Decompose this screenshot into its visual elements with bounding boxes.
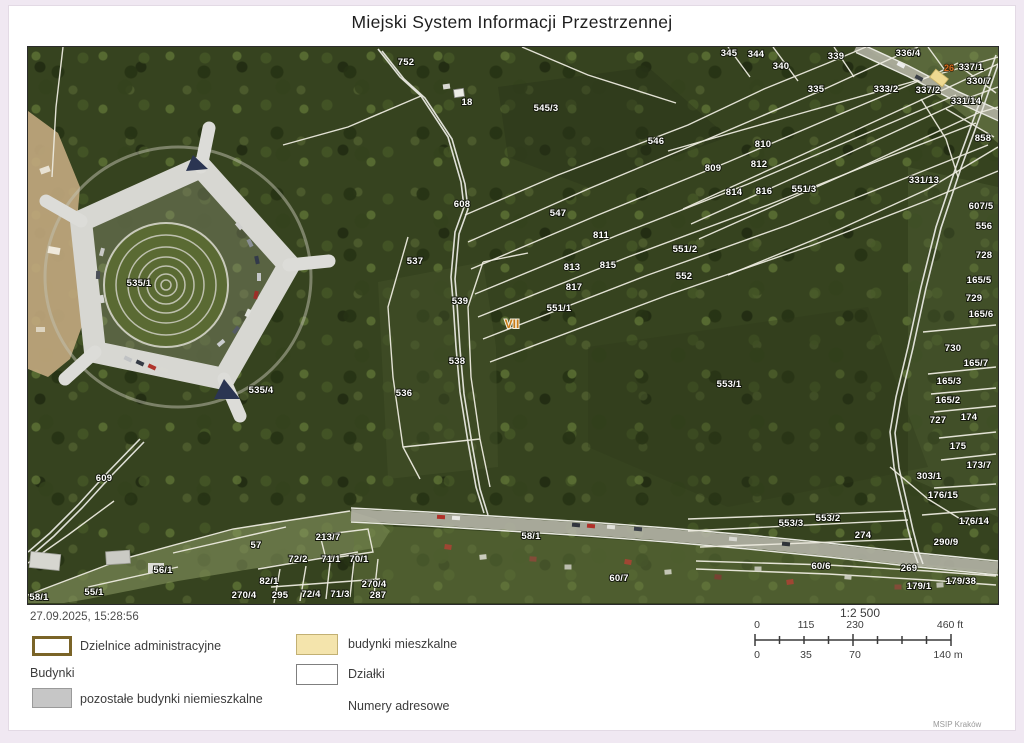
- terrain-patch: [378, 262, 498, 479]
- parcel-label: 303/1: [917, 471, 942, 482]
- parcel-label: 609: [96, 473, 112, 484]
- parcel-label: 546: [648, 136, 664, 147]
- parcel-label: 344: [748, 49, 765, 60]
- parcel-label: 816: [756, 186, 772, 197]
- parcel-label: 290/9: [934, 537, 959, 548]
- car: [572, 523, 580, 528]
- parcel-label: 71/3: [330, 589, 349, 600]
- parcel-label: 535/1: [127, 278, 152, 289]
- garden-shed: [755, 567, 762, 572]
- parcel-label: 814: [726, 187, 743, 198]
- parcel-label: 165/5: [967, 275, 992, 286]
- parcel-label: 173/7: [967, 460, 992, 471]
- parcel-label: 538: [449, 356, 465, 367]
- legend-parcels-label: Działki: [348, 667, 385, 681]
- building: [443, 84, 451, 90]
- scale-ft-115: 115: [798, 619, 815, 631]
- parcel-label: 287: [370, 590, 386, 601]
- parcel-label: 536: [396, 388, 412, 399]
- scale-bar: [749, 632, 965, 648]
- garden-shed: [844, 574, 851, 580]
- building: [36, 327, 45, 332]
- parcel-label: 809: [705, 163, 721, 174]
- parcel-label: 60/6: [811, 561, 830, 572]
- parcel-label: 165/2: [936, 395, 961, 406]
- parcel-label: 858: [975, 133, 991, 144]
- parcel-label: 551/3: [792, 184, 817, 195]
- parcel-label: 752: [398, 57, 414, 68]
- scale-ft-460: 460 ft: [937, 619, 963, 631]
- parcel-label: 274: [855, 530, 872, 541]
- parcel-label: 179/1: [907, 581, 932, 592]
- parcel-label: 175: [950, 441, 967, 452]
- parcel-label: 174: [961, 412, 978, 423]
- car: [437, 515, 445, 520]
- road-line: [32, 442, 144, 555]
- parcel-label: 295: [272, 590, 289, 601]
- parcel-label: 728: [976, 250, 992, 261]
- parcel-label: 337/2: [916, 85, 941, 96]
- parcel-label: 165/6: [969, 309, 994, 320]
- building-wing: [201, 128, 209, 167]
- parcel-label: 60/7: [609, 573, 628, 584]
- parcel-label: 56/1: [153, 565, 173, 576]
- car: [729, 537, 737, 542]
- parcel-label: 269: [901, 563, 917, 574]
- scale-m-35: 35: [800, 649, 812, 661]
- parcel-label: 539: [452, 296, 468, 307]
- scale-m-140: 140 m: [933, 649, 962, 661]
- parcel-label: 57: [251, 540, 262, 551]
- parcel-label: 551/2: [673, 244, 698, 255]
- garden-shed: [936, 582, 943, 587]
- parcel-label: 537: [407, 256, 423, 267]
- msip-credit: MSIP Kraków: [933, 720, 981, 729]
- parcel-label: 58/1: [29, 592, 49, 603]
- legend-parcel-swatch: [296, 664, 338, 685]
- parcel-label: 213/7: [316, 532, 341, 543]
- parcel-label: 340: [773, 61, 789, 72]
- parcel-label: 337/1: [959, 62, 984, 73]
- garden-shed: [529, 556, 536, 561]
- scale-ratio: 1:2 500: [760, 606, 960, 620]
- building: [29, 551, 61, 570]
- terrain-patch: [498, 67, 728, 187]
- parcel-label: 813: [564, 262, 580, 273]
- legend-district-label: Dzielnice administracyjne: [80, 639, 221, 653]
- parcel-label: 176/14: [959, 516, 990, 527]
- legend-residential-swatch: [296, 634, 338, 655]
- parcel-label: 58/1: [521, 531, 541, 542]
- garden-shed: [895, 585, 902, 590]
- parcel-label: 330/7: [967, 76, 992, 87]
- courtyard: [104, 223, 228, 347]
- parcel-label: 72/2: [288, 554, 307, 565]
- parcel-label: 812: [751, 159, 767, 170]
- parcel-label: 730: [945, 343, 961, 354]
- parcel-boundary: [350, 561, 354, 597]
- parcel-label: 815: [600, 260, 617, 271]
- district-label: VII: [505, 317, 520, 331]
- map-overlay: 75218545/3546345344340339336/4337/133533…: [28, 47, 998, 603]
- car: [782, 542, 790, 547]
- export-timestamp: 27.09.2025, 15:28:56: [30, 611, 139, 623]
- parcel-label: 18: [462, 97, 473, 108]
- parcel-label: 331/14: [951, 96, 982, 107]
- parcel-label: 82/1: [259, 576, 279, 587]
- parcel-label: 335: [808, 84, 825, 95]
- parcel-label: 339: [828, 51, 844, 62]
- car: [257, 273, 261, 281]
- terrain-patch: [588, 307, 928, 507]
- car: [587, 524, 595, 529]
- legend-buildings-header: Budynki: [30, 666, 74, 680]
- legend-nonresidential-swatch: [32, 688, 72, 708]
- msip-export-page: { "page": { "title": "Miejski System Inf…: [0, 0, 1024, 743]
- parcel-label: 270/4: [362, 579, 387, 590]
- parcel-label: 345: [721, 48, 738, 59]
- garden-shed: [786, 579, 794, 585]
- car: [96, 271, 100, 279]
- parcel-label: 556: [976, 221, 992, 232]
- scale-ft-230: 230: [846, 619, 864, 631]
- road-line: [28, 439, 140, 552]
- parcel-label: 72/4: [301, 589, 321, 600]
- parcel-label: 551/1: [547, 303, 572, 314]
- parcel-label: 333/2: [874, 84, 899, 95]
- parcel-boundary: [283, 96, 421, 145]
- parcel-label: 545/3: [534, 103, 559, 114]
- building: [106, 550, 131, 565]
- parcel-label: 607/5: [969, 201, 994, 212]
- map-viewport[interactable]: 75218545/3546345344340339336/4337/133533…: [27, 46, 999, 605]
- parcel-label: 71/1: [321, 554, 341, 565]
- building-wing: [289, 261, 329, 265]
- parcel-boundary: [922, 509, 996, 515]
- scale-ft-0: 0: [754, 619, 760, 631]
- parcel-label: 810: [755, 139, 771, 150]
- parcel-label: 553/2: [816, 513, 841, 524]
- garden-shed: [444, 544, 452, 550]
- parcel-label: 176/15: [928, 490, 959, 501]
- parcel-label: 336/4: [896, 48, 921, 59]
- legend-addresses-label: Numery adresowe: [348, 699, 449, 713]
- parcel-label: 535/4: [249, 385, 274, 396]
- parcel-label: 727: [930, 415, 946, 426]
- parcel-label: 553/3: [779, 518, 804, 529]
- legend-district-swatch: [32, 636, 72, 656]
- parcel-label: 729: [966, 293, 982, 304]
- parcel-label: 270/4: [232, 590, 257, 601]
- garden-shed: [565, 565, 572, 570]
- parcel-label: 817: [566, 282, 582, 293]
- parcel-label: 331/13: [909, 175, 939, 186]
- parcel-label: 179/38: [946, 576, 976, 587]
- parcel-label: 165/7: [964, 358, 989, 369]
- parcel-label: 552: [676, 271, 692, 282]
- parcel-label: 608: [454, 199, 470, 210]
- garden-shed: [664, 569, 671, 575]
- car: [452, 516, 460, 521]
- car: [607, 525, 615, 530]
- page-title: Miejski System Informacji Przestrzennej: [0, 12, 1024, 33]
- garden-shed: [714, 574, 721, 580]
- scale-m-0: 0: [754, 649, 760, 661]
- address-number-label: 26: [944, 63, 954, 73]
- parcel-label: 811: [593, 230, 609, 241]
- parcel-label: 547: [550, 208, 566, 219]
- legend-nonresidential-label: pozostałe budynki niemieszkalne: [80, 692, 263, 706]
- parcel-label: 553/1: [717, 379, 742, 390]
- legend-residential-label: budynki mieszkalne: [348, 637, 457, 651]
- parcel-label: 55/1: [84, 587, 104, 598]
- parcel-label: 165/3: [937, 376, 962, 387]
- garden-shed: [479, 554, 486, 560]
- car: [634, 527, 642, 532]
- parcel-label: 70/1: [349, 554, 369, 565]
- scale-m-70: 70: [849, 649, 861, 661]
